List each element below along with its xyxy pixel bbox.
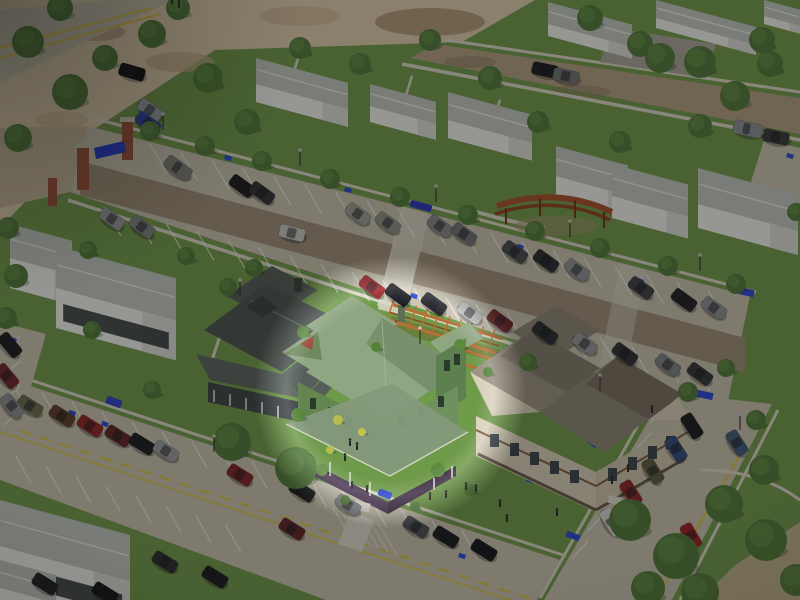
- aerial-rendering: [0, 0, 800, 600]
- person: [651, 405, 654, 413]
- person: [465, 482, 468, 490]
- person: [506, 514, 509, 522]
- brick-pillar: [77, 146, 89, 190]
- brick-pillar: [122, 120, 133, 160]
- person: [349, 438, 352, 446]
- person: [475, 484, 478, 492]
- scene-svg: [0, 0, 800, 600]
- tower-window: [444, 360, 450, 371]
- person: [344, 453, 347, 461]
- person: [351, 481, 354, 489]
- person: [178, 0, 181, 8]
- chimney: [294, 278, 302, 292]
- person: [429, 492, 432, 500]
- person: [445, 490, 448, 498]
- person: [611, 476, 614, 484]
- pillar-cap: [120, 117, 135, 122]
- tower-window: [454, 354, 460, 365]
- person: [627, 464, 630, 472]
- person: [356, 442, 359, 450]
- person: [499, 499, 502, 507]
- person: [171, 0, 174, 4]
- dirt-patch: [260, 6, 340, 26]
- pillar-cap: [75, 143, 91, 148]
- person: [556, 508, 559, 516]
- brick-pillar-small: [48, 178, 57, 206]
- chimney: [398, 306, 405, 322]
- person: [366, 485, 369, 493]
